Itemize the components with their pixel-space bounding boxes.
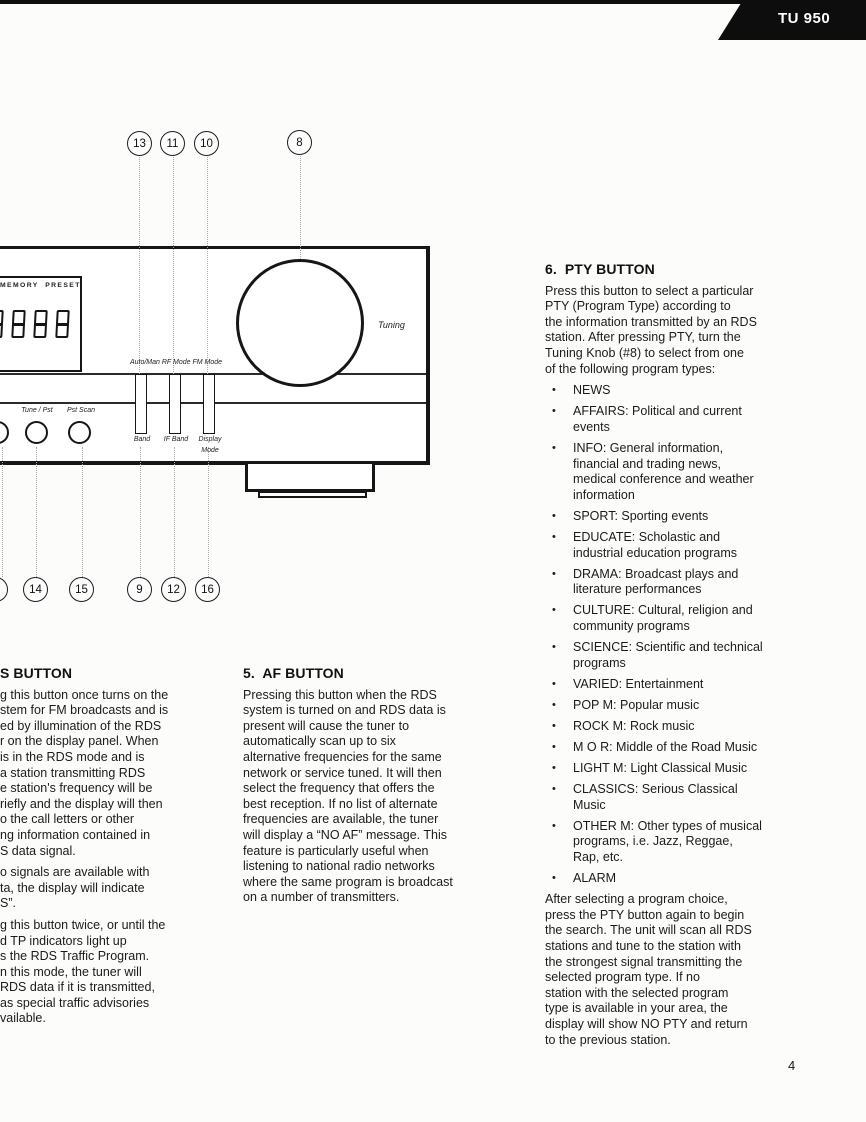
display-mode-label-line2: Mode (192, 447, 228, 454)
tuning-knob (236, 259, 364, 387)
callout-10-number: 10 (200, 138, 213, 150)
bullet-text: OTHER M: Other types of musical programs… (573, 819, 790, 866)
bullet-text: CLASSICS: Serious Classical Music (573, 782, 790, 813)
bullet-dot-icon: • (552, 871, 573, 887)
seven-segment-digits (0, 310, 70, 338)
bullet-text: SPORT: Sporting events (573, 509, 790, 525)
pty-bullet-item: •ROCK M: Rock music (545, 719, 790, 735)
bullet-text: CULTURE: Cultural, religion and communit… (573, 603, 790, 634)
pty-bullet-item: •SCIENCE: Scientific and technical progr… (545, 640, 790, 671)
callout-9: 9 (127, 577, 152, 602)
callout-13: 13 (127, 131, 152, 156)
section-rds-button: S BUTTON g this button once turns on the… (0, 666, 182, 1033)
callout-15-number: 15 (75, 584, 88, 596)
callout-16-number: 16 (201, 584, 214, 596)
pty-bullet-item: •ALARM (545, 871, 790, 887)
seven-segment-digit-partial (0, 310, 4, 338)
tuner-foot-base (258, 491, 367, 498)
pty-bullet-item: •AFFAIRS: Political and current events (545, 404, 790, 435)
display-mode-label-line1: Display (192, 436, 228, 443)
bullet-text: NEWS (573, 383, 790, 399)
tune-pst-button (25, 421, 48, 444)
callout-12-number: 12 (167, 584, 180, 596)
bullet-dot-icon: • (552, 509, 573, 525)
pty-bullet-item: •LIGHT M: Light Classical Music (545, 761, 790, 777)
leader-line-9 (140, 447, 141, 577)
section-af-button: 5. AF BUTTON Pressing this button when t… (243, 666, 483, 912)
band-label: Band (128, 436, 156, 443)
seven-segment-digit-8 (33, 310, 47, 338)
pty-intro-paragraph: Press this button to select a particular… (545, 284, 790, 378)
pty-bullet-item: •M O R: Middle of the Road Music (545, 740, 790, 756)
leader-line-14 (36, 447, 37, 577)
bullet-dot-icon: • (552, 640, 573, 671)
bullet-dot-icon: • (552, 404, 573, 435)
bullet-dot-icon: • (552, 819, 573, 866)
bullet-text: POP M: Popular music (573, 698, 790, 714)
leader-line-15 (82, 447, 83, 577)
bullet-dot-icon: • (552, 441, 573, 503)
if-band-label: IF Band (158, 436, 194, 443)
pty-bullet-item: •NEWS (545, 383, 790, 399)
pty-bullet-item: •INFO: General information, financial an… (545, 441, 790, 503)
bullet-dot-icon: • (552, 530, 573, 561)
af-paragraph: Pressing this button when the RDS system… (243, 688, 483, 906)
pty-bullet-item: •CLASSICS: Serious Classical Music (545, 782, 790, 813)
callout-12: 12 (161, 577, 186, 602)
callout-15: 15 (69, 577, 94, 602)
bullet-text: VARIED: Entertainment (573, 677, 790, 693)
callout-8: 8 (287, 130, 312, 155)
leader-line-12 (174, 447, 175, 577)
tuner-foot (245, 464, 375, 492)
bullet-dot-icon: • (552, 567, 573, 598)
bullet-dot-icon: • (552, 782, 573, 813)
pty-bullet-item: •SPORT: Sporting events (545, 509, 790, 525)
callout-8-number: 8 (296, 137, 302, 149)
pty-program-type-list: •NEWS•AFFAIRS: Political and current eve… (545, 383, 790, 887)
callout-9-number: 9 (136, 584, 142, 596)
band-button (135, 374, 147, 434)
callout-11: 11 (160, 131, 185, 156)
bullet-text: M O R: Middle of the Road Music (573, 740, 790, 756)
bullet-dot-icon: • (552, 677, 573, 693)
bullet-dot-icon: • (552, 740, 573, 756)
bullet-text: ALARM (573, 871, 790, 887)
tune-pst-label: Tune / Pst (14, 407, 60, 414)
auto-man-rf-fm-label: Auto/Man RF Mode FM Mode (120, 359, 232, 366)
pst-scan-label: Pst Scan (60, 407, 102, 414)
bullet-dot-icon: • (552, 383, 573, 399)
callout-11-number: 11 (167, 138, 179, 150)
bullet-text: AFFAIRS: Political and current events (573, 404, 790, 435)
rds-button-heading: S BUTTON (0, 666, 182, 682)
bullet-text: EDUCATE: Scholastic and industrial educa… (573, 530, 790, 561)
bullet-text: INFO: General information, financial and… (573, 441, 790, 503)
callout-14: 14 (23, 577, 48, 602)
rds-paragraph-2: o signals are available with ta, the dis… (0, 865, 182, 912)
bullet-text: LIGHT M: Light Classical Music (573, 761, 790, 777)
callout-left-cut (0, 577, 8, 602)
callout-14-number: 14 (29, 584, 42, 596)
page-number: 4 (788, 1058, 795, 1073)
seven-segment-digit-8 (11, 310, 25, 338)
bullet-dot-icon: • (552, 698, 573, 714)
leader-line-8 (300, 156, 301, 259)
callout-16: 16 (195, 577, 220, 602)
top-rule (0, 0, 760, 4)
pty-bullet-item: •POP M: Popular music (545, 698, 790, 714)
leader-line-16 (208, 447, 209, 577)
memory-preset-label: MEMORY PRESET (0, 282, 81, 289)
af-button-heading: 5. AF BUTTON (243, 666, 483, 682)
callout-10: 10 (194, 131, 219, 156)
model-badge: TU 950 (690, 0, 866, 40)
bullet-dot-icon: • (552, 603, 573, 634)
pty-bullet-item: •CULTURE: Cultural, religion and communi… (545, 603, 790, 634)
section-pty-button: 6. PTY BUTTON Press this button to selec… (545, 262, 790, 1054)
pty-bullet-item: •DRAMA: Broadcast plays and literature p… (545, 567, 790, 598)
bullet-text: DRAMA: Broadcast plays and literature pe… (573, 567, 790, 598)
bullet-dot-icon: • (552, 761, 573, 777)
pty-bullet-item: •EDUCATE: Scholastic and industrial educ… (545, 530, 790, 561)
rds-paragraph-3: g this button twice, or until the d TP i… (0, 918, 182, 1027)
model-badge-label: TU 950 (778, 0, 830, 38)
bullet-text: SCIENCE: Scientific and technical progra… (573, 640, 790, 671)
leader-line-left-cut (2, 447, 3, 577)
pst-scan-button (68, 421, 91, 444)
pty-bullet-item: •OTHER M: Other types of musical program… (545, 819, 790, 866)
seven-segment-digit-8 (55, 310, 69, 338)
bullet-text: ROCK M: Rock music (573, 719, 790, 735)
pty-button-heading: 6. PTY BUTTON (545, 262, 790, 278)
callout-13-number: 13 (133, 138, 146, 150)
display-mode-button (203, 374, 215, 434)
tuning-knob-label: Tuning (378, 320, 420, 330)
rds-paragraph-1: g this button once turns on the stem for… (0, 688, 182, 860)
bullet-dot-icon: • (552, 719, 573, 735)
pty-bullet-item: •VARIED: Entertainment (545, 677, 790, 693)
if-band-button (169, 374, 181, 434)
manual-page: TU 950 13 11 10 8 MEMORY PRESET (0, 0, 866, 1122)
pty-outro-paragraph: After selecting a program choice, press … (545, 892, 790, 1048)
